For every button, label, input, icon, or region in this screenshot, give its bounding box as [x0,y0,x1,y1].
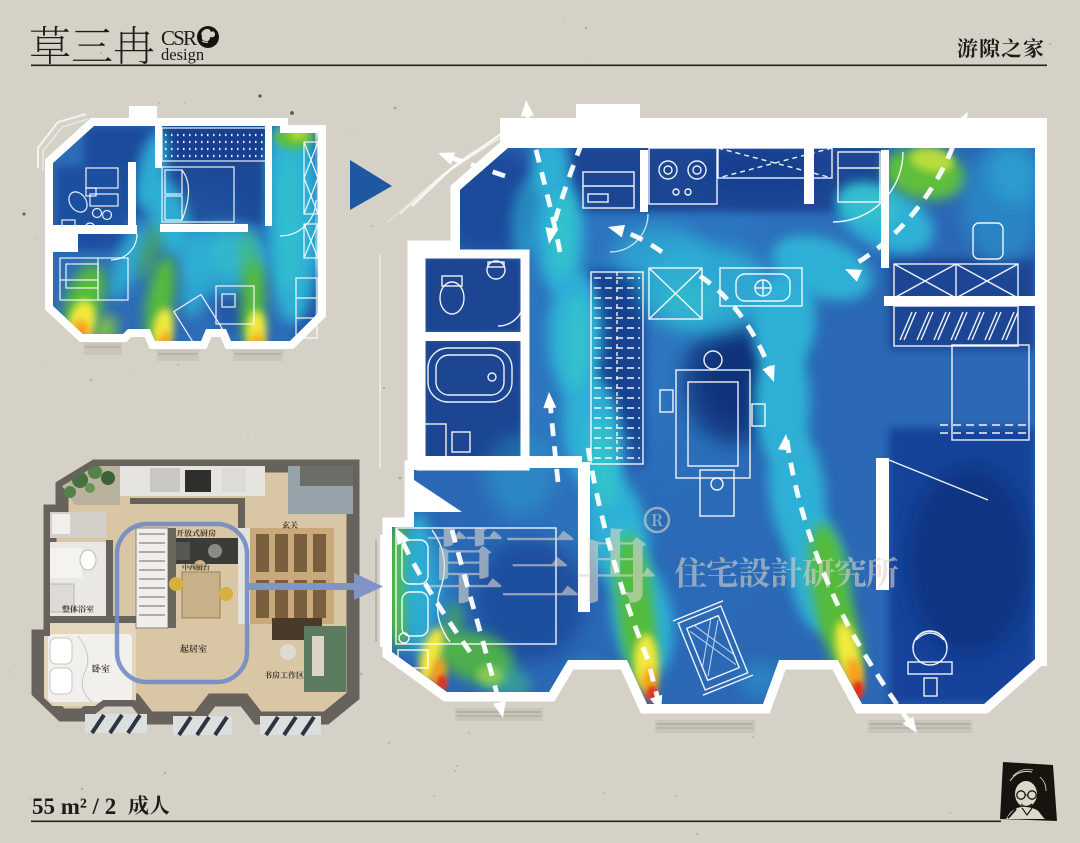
svg-text:55 m² / 2: 55 m² / 2 [32,794,116,819]
svg-text:design: design [161,45,204,64]
